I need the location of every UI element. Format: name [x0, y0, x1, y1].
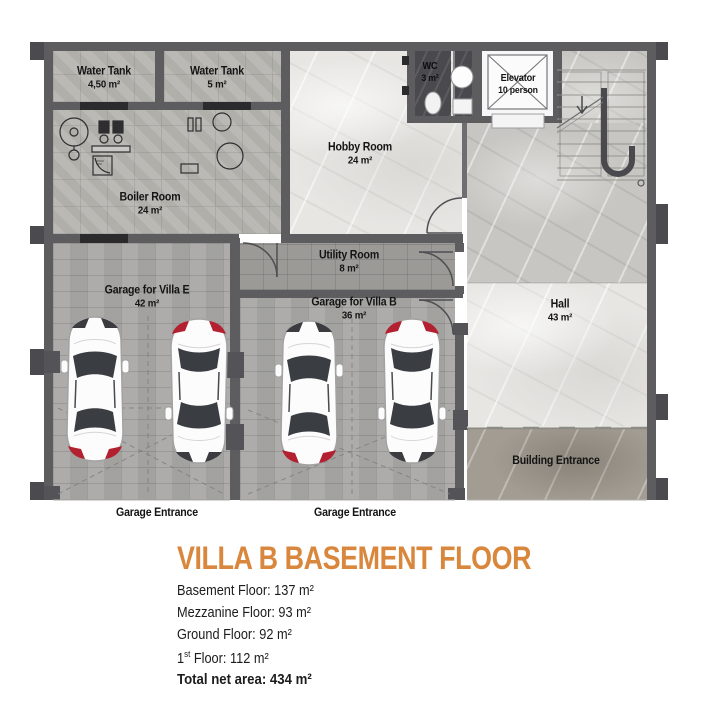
room-name: Garage for Villa B: [311, 296, 396, 310]
room-label-elevator: Elevator 10 person: [498, 73, 538, 97]
room-label-water-tank-1: Water Tank 4,50 m²: [77, 65, 131, 92]
room-name: Water Tank: [190, 65, 244, 79]
room-area: 8 m²: [319, 263, 379, 276]
room-name: Hall: [548, 298, 572, 312]
room-label-hobby-room: Hobby Room 24 m²: [328, 141, 392, 168]
page-title: VILLA B BASEMENT FLOOR: [177, 540, 531, 577]
room-name: Garage for Villa E: [105, 284, 190, 298]
room-label-garage-villa-e: Garage for Villa E 42 m²: [105, 284, 190, 311]
legend-ground-floor: Ground Floor: 92 m²: [177, 627, 292, 643]
first-floor-rest: Floor: 112 m²: [190, 651, 268, 667]
label-garage-entrance-right: Garage Entrance: [314, 506, 396, 520]
room-area: 36 m²: [311, 310, 396, 323]
car-top-view: [274, 318, 344, 468]
room-name: WC: [421, 61, 438, 73]
room-area: 4,50 m²: [77, 79, 131, 92]
room-name: Elevator: [498, 73, 538, 85]
legend-first-floor: 1st Floor: 112 m²: [177, 649, 269, 667]
room-name: Utility Room: [319, 249, 379, 263]
entrance-label: Garage Entrance: [116, 506, 198, 520]
room-label-wc: WC 3 m²: [421, 61, 438, 85]
room-label-building-entrance: Building Entrance: [512, 454, 599, 468]
car-top-view: [377, 316, 447, 466]
floor-plan-page: Water Tank 4,50 m² Water Tank 5 m² WC 3 …: [0, 0, 701, 720]
legend-mezzanine-floor: Mezzanine Floor: 93 m²: [177, 605, 311, 621]
legend-total-net-area: Total net area: 434 m²: [177, 671, 312, 688]
room-area: 42 m²: [105, 298, 190, 311]
room-capacity: 10 person: [498, 85, 538, 97]
room-name: Building Entrance: [512, 454, 599, 468]
first-floor-prefix: 1: [177, 651, 184, 667]
room-area: 5 m²: [190, 79, 244, 92]
car-top-view: [60, 314, 130, 464]
room-label-utility-room: Utility Room 8 m²: [319, 249, 379, 276]
room-area: 3 m²: [421, 73, 438, 85]
boiler-equipment: [60, 113, 243, 175]
room-name: Boiler Room: [120, 191, 181, 205]
room-area: 43 m²: [548, 312, 572, 325]
label-garage-entrance-left: Garage Entrance: [116, 506, 198, 520]
room-area: 24 m²: [328, 155, 392, 168]
room-label-hall: Hall 43 m²: [548, 298, 572, 325]
room-name: Water Tank: [77, 65, 131, 79]
room-label-boiler-room: Boiler Room 24 m²: [120, 191, 181, 218]
entrance-label: Garage Entrance: [314, 506, 396, 520]
room-name: Hobby Room: [328, 141, 392, 155]
room-area: 24 m²: [120, 205, 181, 218]
room-label-water-tank-2: Water Tank 5 m²: [190, 65, 244, 92]
legend-basement-floor: Basement Floor: 137 m²: [177, 583, 314, 599]
car-top-view: [164, 316, 234, 466]
room-label-garage-villa-b: Garage for Villa B 36 m²: [311, 296, 396, 323]
